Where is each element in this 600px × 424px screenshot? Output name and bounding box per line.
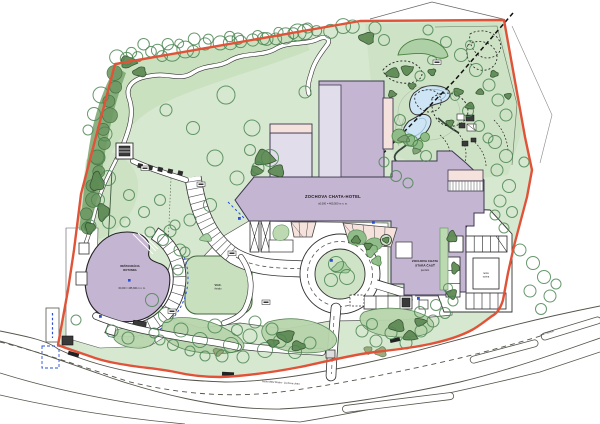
svg-text:cesta II/502 Modra - Zochova c: cesta II/502 Modra - Zochova chata xyxy=(262,380,300,386)
svg-text:ROTUNDA: ROTUNDA xyxy=(123,268,136,272)
svg-text:STARÁ ČASŤ: STARÁ ČASŤ xyxy=(415,263,435,268)
svg-text:ZOCHOVA CHATA-HOTEL: ZOCHOVA CHATA-HOTEL xyxy=(305,194,361,199)
svg-text:VIAC.: VIAC. xyxy=(215,283,222,287)
svg-text:scéna: scéna xyxy=(483,276,490,279)
svg-text:±0,000 = 465,500 m n. m.: ±0,000 = 465,500 m n. m. xyxy=(318,202,348,206)
svg-text:ZOCHOVA CHATA: ZOCHOVA CHATA xyxy=(412,259,439,263)
svg-text:±0,000 = 465,300 m n. m.: ±0,000 = 465,300 m n. m. xyxy=(118,287,146,290)
svg-text:penzión: penzión xyxy=(421,269,430,272)
svg-text:ihrisko: ihrisko xyxy=(215,288,223,291)
